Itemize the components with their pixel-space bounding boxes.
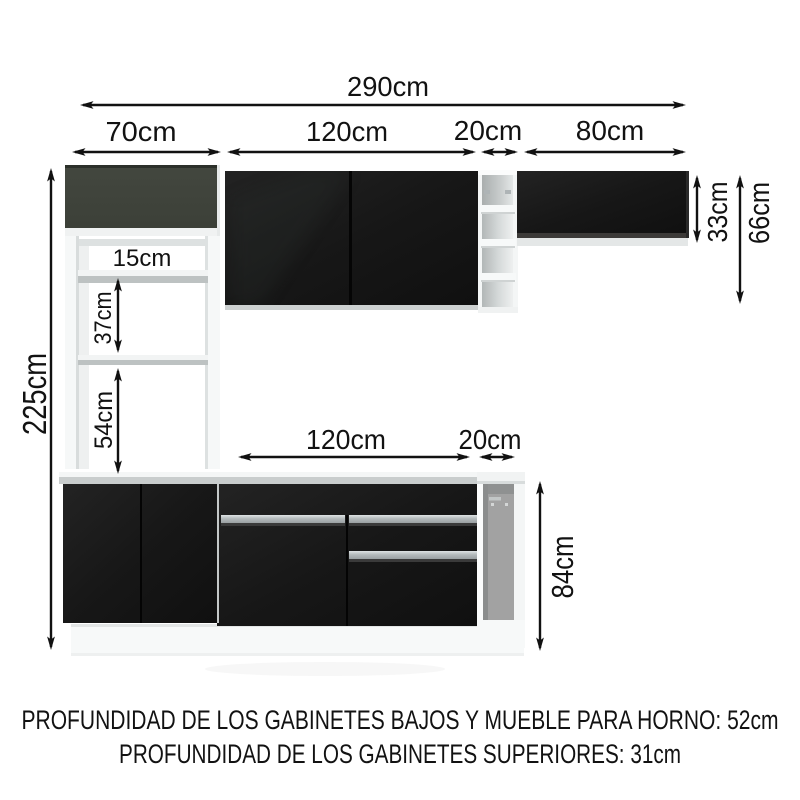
svg-text:225cm: 225cm <box>16 353 53 435</box>
svg-text:37cm: 37cm <box>90 292 117 345</box>
svg-text:54cm: 54cm <box>90 391 118 449</box>
svg-text:20cm: 20cm <box>454 115 522 146</box>
svg-text:PROFUNDIDAD DE LOS GABINETES B: PROFUNDIDAD DE LOS GABINETES BAJOS Y MUE… <box>22 705 779 735</box>
svg-text:PROFUNDIDAD DE LOS GABINETES S: PROFUNDIDAD DE LOS GABINETES SUPERIORES:… <box>119 739 681 769</box>
svg-text:120cm: 120cm <box>306 424 386 455</box>
svg-text:70cm: 70cm <box>106 116 177 147</box>
svg-text:120cm: 120cm <box>306 116 388 147</box>
svg-text:84cm: 84cm <box>545 536 580 599</box>
svg-text:33cm: 33cm <box>702 182 733 243</box>
svg-text:66cm: 66cm <box>744 182 776 244</box>
svg-text:20cm: 20cm <box>459 424 522 455</box>
svg-text:290cm: 290cm <box>347 71 429 102</box>
svg-text:80cm: 80cm <box>576 115 644 146</box>
svg-text:15cm: 15cm <box>113 245 172 272</box>
